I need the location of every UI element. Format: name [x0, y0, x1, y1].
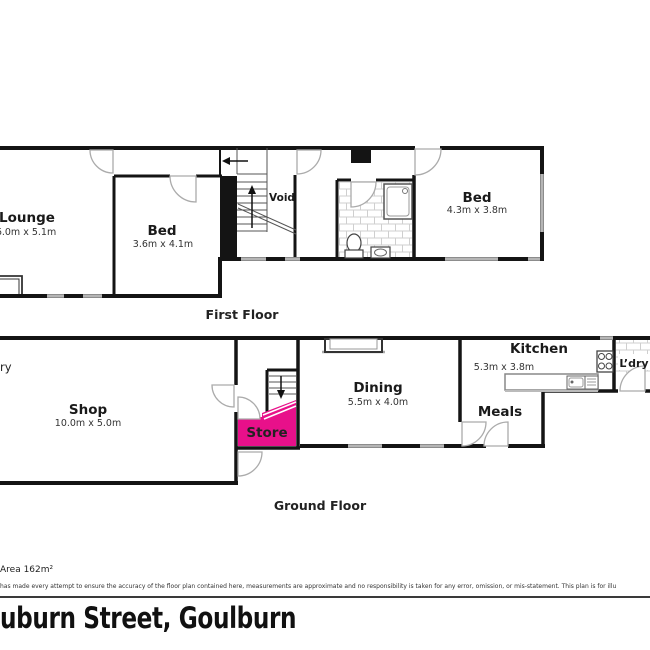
kitchen-stove — [597, 351, 613, 372]
room-dims-lounge: 6.0m x 5.1m — [0, 227, 56, 238]
disclaimer-text: has made every attempt to ensure the acc… — [0, 583, 650, 590]
property-address: uburn Street, Goulburn — [0, 601, 520, 635]
ground-floor-title: Ground Floor — [274, 498, 367, 513]
room-label-entry-partial: ry — [0, 360, 12, 374]
room-label-void: Void — [269, 192, 295, 204]
room-dims-bed1: 3.6m x 4.1m — [133, 239, 193, 250]
ground-floor-plan: ry Shop 10.0m x 5.0m Store Dining 5.5m x… — [0, 338, 650, 513]
shower — [384, 184, 412, 219]
floorplan-canvas: Lounge 6.0m x 5.1m Bed 3.6m x 4.1m Void … — [0, 0, 650, 560]
lounge-cupboard — [0, 276, 22, 294]
stair-wall — [220, 176, 237, 259]
room-label-kitchen: Kitchen — [510, 341, 568, 357]
room-label-dining: Dining — [353, 380, 402, 396]
room-label-lounge: Lounge — [0, 210, 55, 226]
room-label-shop: Shop — [69, 402, 108, 418]
room-dims-kitchen: 5.3m x 3.8m — [474, 362, 534, 373]
kitchen-sink — [567, 376, 585, 389]
room-label-meals: Meals — [478, 404, 522, 420]
room-dims-dining: 5.5m x 4.0m — [348, 397, 408, 408]
room-label-store: Store — [246, 425, 287, 441]
room-label-laundry: L’dry — [619, 357, 648, 370]
first-floor-title: First Floor — [206, 307, 280, 322]
stairs-up-arrow-icon — [248, 185, 256, 228]
chimney — [351, 148, 371, 163]
stairs-direction-arrow-icon — [222, 157, 248, 165]
room-dims-shop: 10.0m x 5.0m — [55, 418, 121, 429]
dining-fireplace — [322, 339, 385, 352]
room-label-bed2: Bed — [462, 190, 491, 206]
toilet — [345, 234, 363, 258]
first-floor-plan: Lounge 6.0m x 5.1m Bed 3.6m x 4.1m Void … — [0, 145, 542, 322]
room-label-bed1: Bed — [147, 223, 176, 239]
divider-line — [0, 596, 650, 598]
floorplan-image: Lounge 6.0m x 5.1m Bed 3.6m x 4.1m Void … — [0, 0, 650, 650]
area-total-label: Area 162m² — [0, 565, 650, 575]
sink — [371, 247, 390, 258]
kitchen-dishwasher — [585, 376, 598, 389]
room-dims-bed2: 4.3m x 3.8m — [447, 205, 507, 216]
